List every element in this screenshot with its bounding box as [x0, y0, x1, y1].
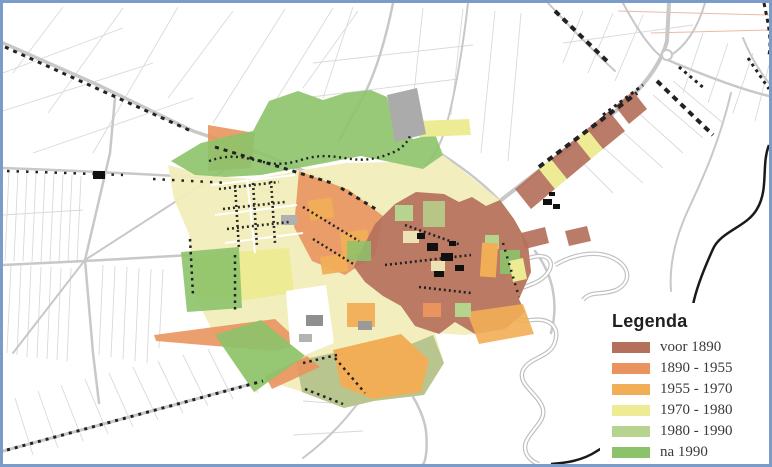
parcel-lines-west-lower: [7, 265, 163, 363]
legend-item-1955---1970: 1955 - 1970: [612, 379, 769, 400]
ribbon-topright-edge: [764, 3, 769, 55]
road-junction-circle: [662, 50, 672, 60]
road-dike-northeast: [500, 3, 669, 201]
legend-item-label: 1980 - 1990: [660, 423, 733, 440]
legend-item-label: 1955 - 1970: [660, 381, 733, 398]
legend-item-label: voor 1890: [660, 339, 721, 356]
legend-item-1890---1955: 1890 - 1955: [612, 358, 769, 379]
legend-swatch: [612, 405, 650, 416]
legend-swatch: [612, 342, 650, 353]
area-na1990-west-block: [181, 247, 242, 312]
legend-item-voor-1890: voor 1890: [612, 337, 769, 358]
town-areas-layer: [154, 88, 647, 408]
road-west-horizontal-2: [3, 255, 191, 265]
legend-item-1980---1990: 1980 - 1990: [612, 421, 769, 442]
legend-item-label: 1970 - 1980: [660, 402, 733, 419]
legend-swatch: [612, 384, 650, 395]
legend-item-na-1990: na 1990: [612, 442, 769, 463]
map-frame: Legenda voor 18901890 - 19551955 - 19701…: [0, 0, 772, 467]
legend-items: voor 18901890 - 19551955 - 19701970 - 19…: [612, 337, 769, 463]
legend-swatch: [612, 363, 650, 374]
legend-swatch: [612, 426, 650, 437]
legend-title: Legenda: [612, 311, 769, 332]
legend-swatch: [612, 447, 650, 458]
legend-item-label: na 1990: [660, 444, 708, 461]
legend: Legenda voor 18901890 - 19551955 - 19701…: [600, 303, 769, 464]
legend-item-label: 1890 - 1955: [660, 360, 733, 377]
parcel-lines-west-upper: [3, 171, 83, 263]
legend-item-1970---1980: 1970 - 1980: [612, 400, 769, 421]
